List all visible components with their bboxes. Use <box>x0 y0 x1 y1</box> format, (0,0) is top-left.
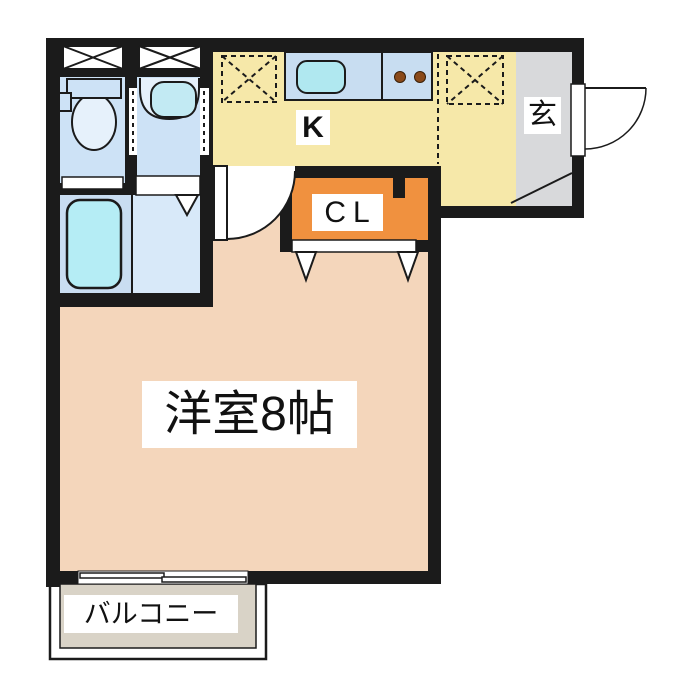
sliding-window-panel <box>80 573 164 578</box>
wall-mid-vertical <box>200 38 213 307</box>
stove-burner-icon <box>395 72 406 83</box>
stove-burner-icon <box>415 72 426 83</box>
bathroom-door-opening <box>136 176 200 195</box>
floorplan-canvas: K 玄 CL 洋室8帖 バルコニー <box>0 0 700 700</box>
closet-door-track <box>292 240 416 252</box>
wall-bathroom-bottom <box>46 293 213 307</box>
wall-entrance-bottom <box>428 206 584 218</box>
entrance-door-arc <box>585 88 646 149</box>
entrance-door-swing-icon <box>571 84 646 156</box>
kitchen-sink-icon <box>297 61 345 93</box>
wall-closet-notch <box>393 166 405 198</box>
wall-right <box>428 166 441 584</box>
washbasin-right-opening <box>200 88 209 155</box>
entrance-label: 玄 <box>524 97 561 134</box>
closet-label: CL <box>312 194 383 231</box>
washbasin-window-icon <box>139 46 201 69</box>
sliding-window-panel <box>162 577 246 582</box>
entrance-door-opening <box>571 84 585 156</box>
washbasin-icon <box>140 78 199 119</box>
kitchen-label: K <box>296 110 330 145</box>
balcony-label: バルコニー <box>64 595 238 633</box>
washbasin-left-opening <box>129 88 137 155</box>
kitchen-door-leaf <box>214 166 227 240</box>
western-room-label: 洋室8帖 <box>142 381 357 448</box>
wall-closet-track-stub <box>416 240 428 252</box>
toilet-door-icon <box>62 177 123 189</box>
toilet-window-icon <box>63 46 123 69</box>
sliding-window-icon <box>78 571 248 584</box>
wall-left <box>46 38 60 587</box>
wall-top <box>203 38 584 52</box>
